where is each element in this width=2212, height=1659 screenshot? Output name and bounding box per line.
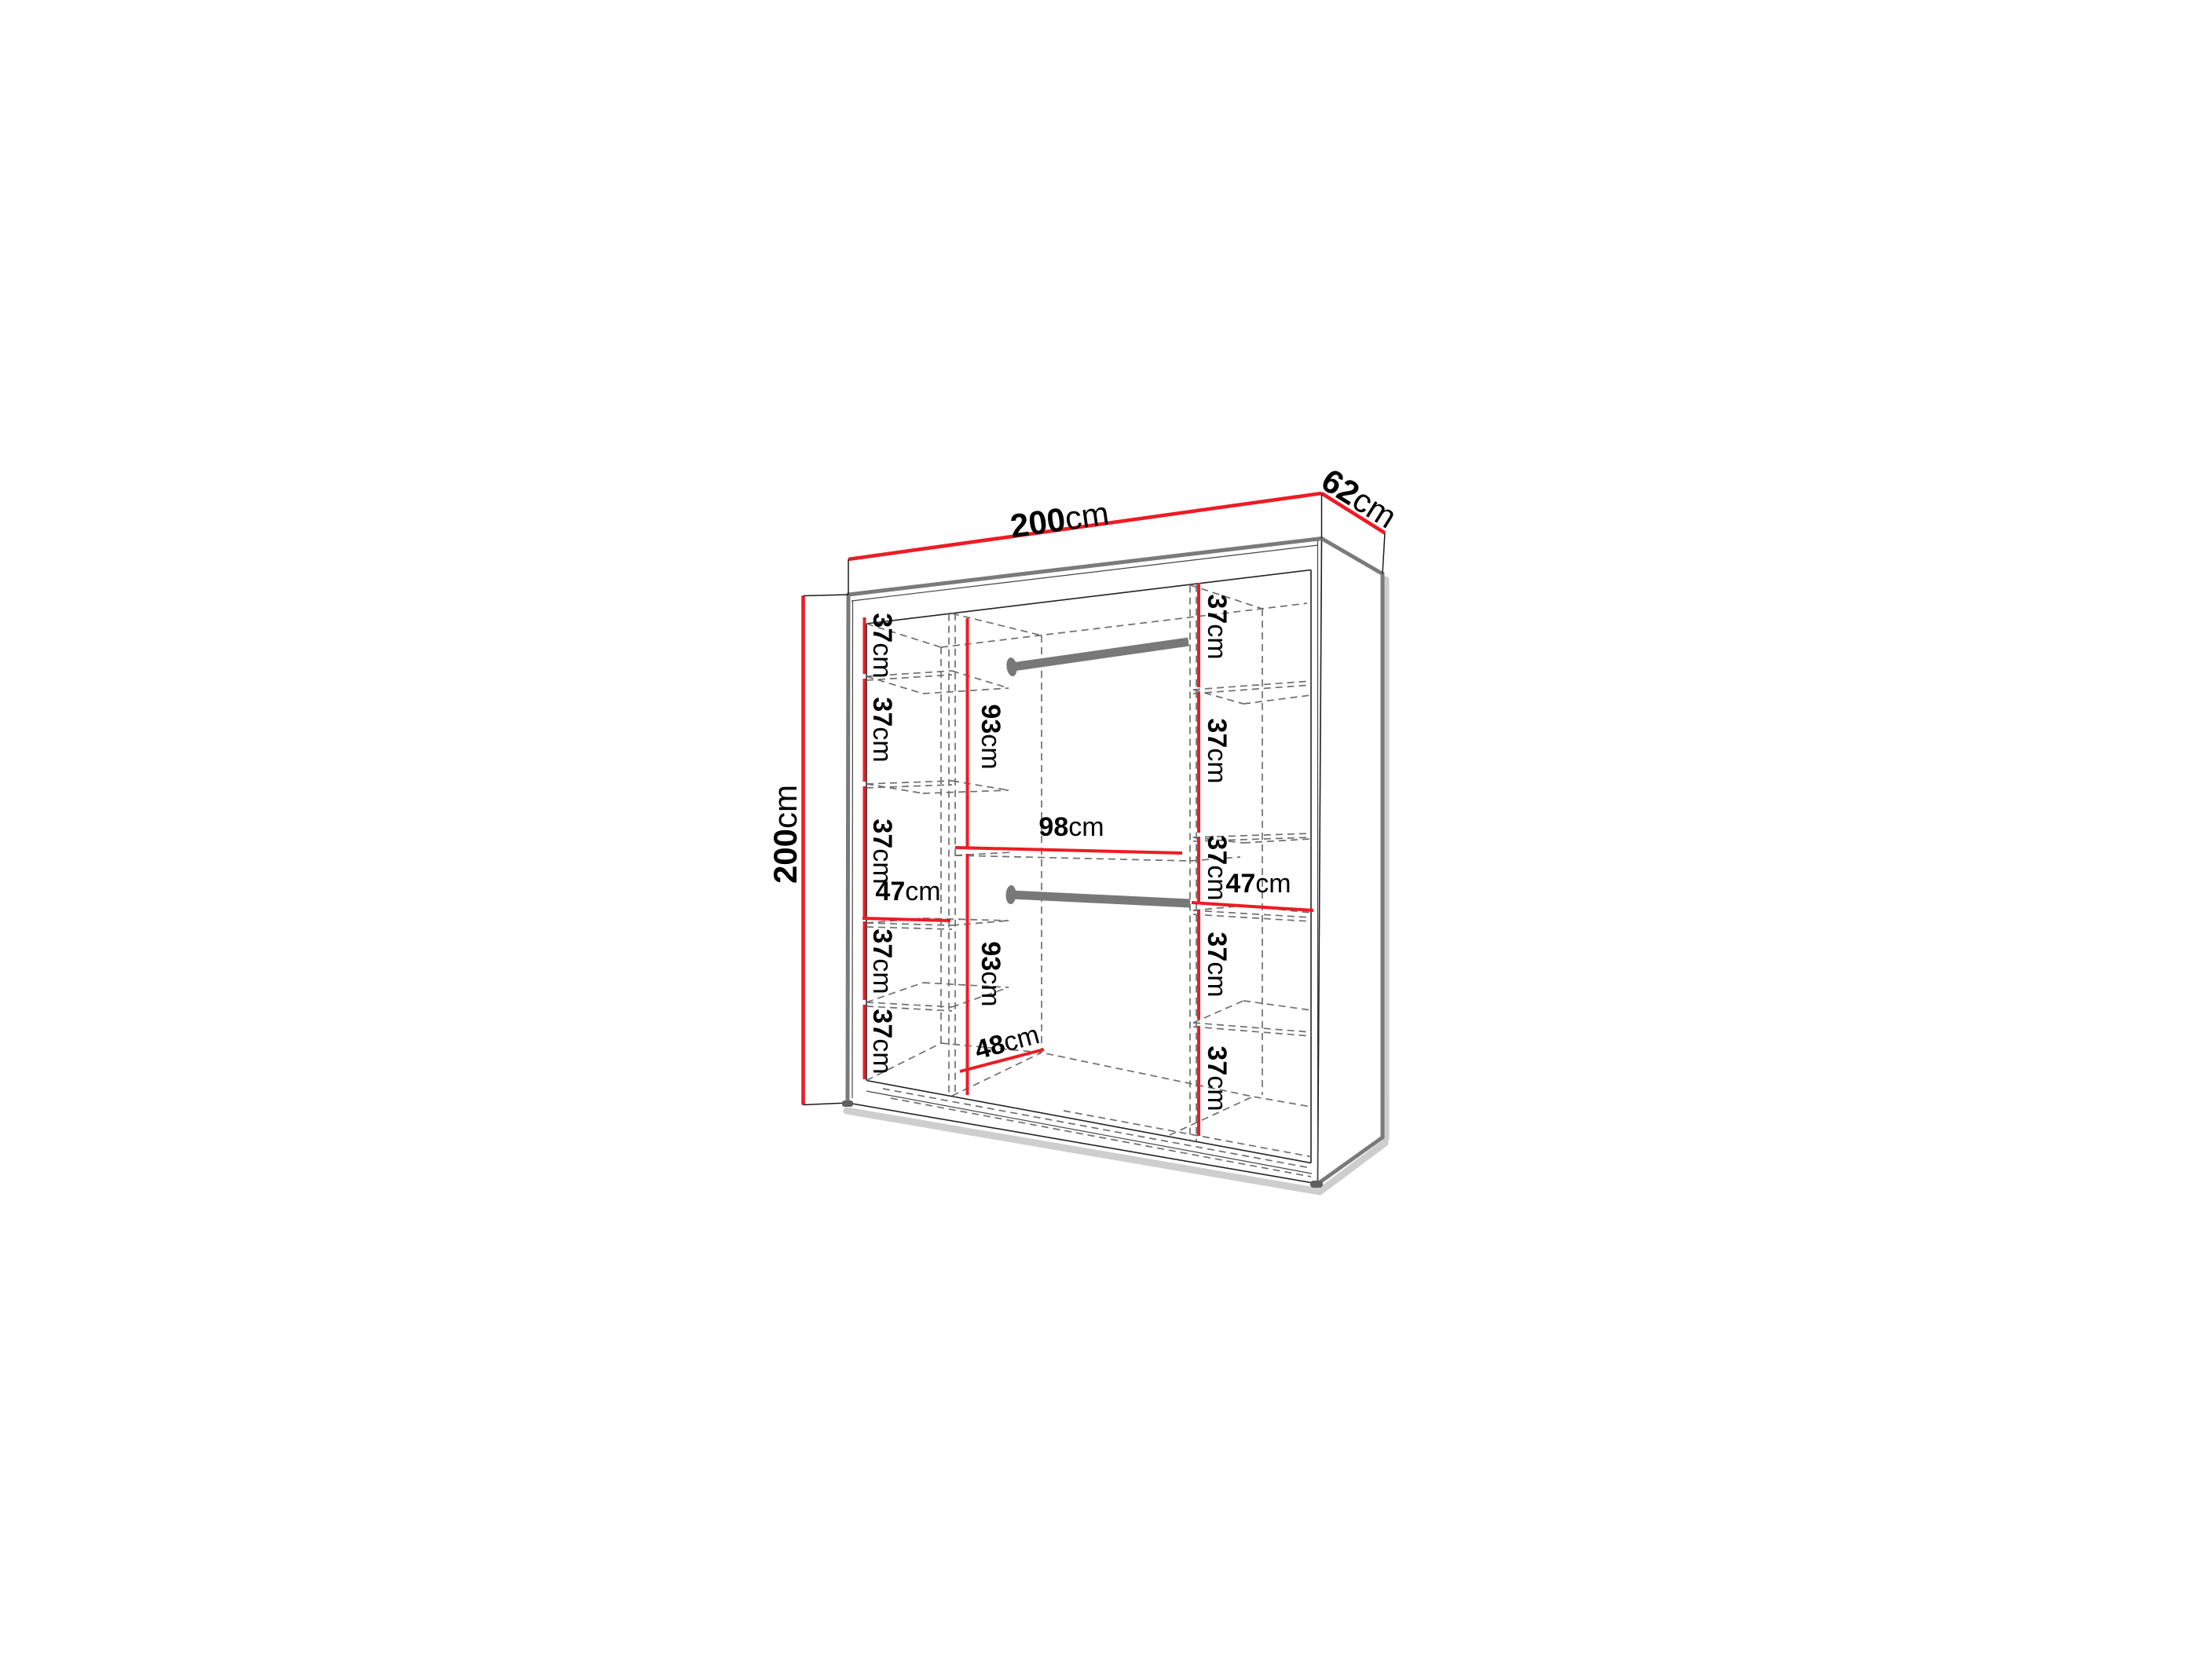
cabinet-side-panel (1318, 539, 1383, 1185)
dim-label-left-s3: 37cm (867, 819, 897, 884)
dim-label-right-width: 47cm (1225, 869, 1291, 899)
dim-label-left-width: 47cm (875, 877, 940, 906)
dim-label-width-top: 200cm (1008, 494, 1111, 544)
dim-label-mid-width: 98cm (1038, 812, 1104, 842)
shelf (1193, 1001, 1311, 1036)
dim-label-right-s4: 37cm (1202, 932, 1232, 997)
edge-top-front (848, 539, 1322, 595)
plinth-line (866, 1091, 1312, 1174)
dim-label-mid-lower: 93cm (976, 941, 1005, 1006)
dim-label-left-s5: 37cm (867, 1009, 897, 1074)
dim-label-right-s5: 37cm (1202, 1046, 1232, 1111)
cabinet-front-face (848, 539, 1322, 1185)
dim-line-mid-width (955, 848, 1182, 853)
hanging-rail-upper (1013, 642, 1188, 667)
wardrobe-dimension-diagram: 200cm 62cm 200cm 37cm 37cm 37cm 47cm 37c… (553, 415, 1659, 1244)
dim-label-right-s2: 37cm (1202, 718, 1232, 783)
dim-label-right-s1: 37cm (1202, 594, 1232, 659)
cabinet-feet (842, 1101, 1323, 1188)
dim-lines-middle-column (955, 618, 1182, 1095)
cabinet-body (848, 539, 1382, 1185)
edge-left-front (848, 595, 848, 1103)
dim-label-left-s1: 37cm (867, 613, 897, 678)
dim-label-mid-upper: 93cm (976, 704, 1005, 769)
dim-label-height-left: 200cm (767, 785, 804, 884)
top-panel-underline (851, 545, 1318, 601)
dim-label-depth-top: 62cm (1315, 461, 1403, 535)
rail-end-cap-upper (1005, 657, 1018, 677)
rail-end-cap-lower (1005, 885, 1016, 905)
shelf (866, 781, 1009, 793)
diagram-stage: 200cm 62cm 200cm 37cm 37cm 37cm 47cm 37c… (0, 0, 2212, 1659)
dim-label-left-s4: 37cm (867, 928, 897, 994)
shelf (1193, 681, 1311, 704)
left-stile-inner (852, 601, 853, 1098)
hanging-rail-lower (1012, 895, 1190, 903)
dim-label-left-s2: 37cm (867, 697, 897, 762)
hanging-rails (1005, 642, 1190, 904)
interior-ceiling (866, 570, 1311, 624)
edge-bottom-side (1318, 1137, 1383, 1184)
edge-top-side (1322, 539, 1383, 574)
